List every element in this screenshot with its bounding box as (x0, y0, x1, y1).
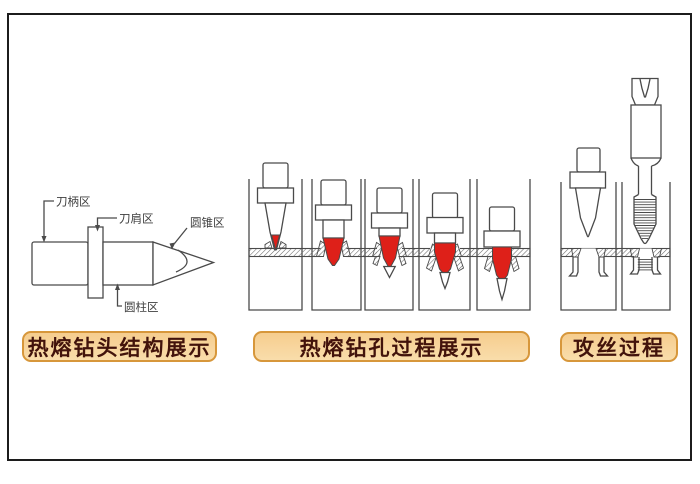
label-cylinder-zone: 圆柱区 (124, 300, 159, 314)
flow-drilling-stage-3 (372, 188, 408, 278)
tap-neck (639, 166, 652, 195)
label-shank-zone: 刀柄区 (56, 196, 91, 209)
tap-waist (631, 158, 661, 166)
drill-flange (258, 188, 294, 203)
drill-shank (263, 163, 288, 188)
drill-shank (433, 193, 458, 218)
drill-shank (321, 180, 346, 205)
drill-flange (372, 213, 408, 228)
flow-drilling-process (249, 163, 530, 310)
label-shoulder-zone: 刀肩区 (119, 212, 154, 226)
flow-drilling-stage-1 (258, 163, 294, 251)
cylinder-leader-line (118, 289, 123, 306)
shoulder-leader-line (98, 218, 118, 226)
bushing-collar-left (630, 249, 640, 258)
shank-leader-line (44, 201, 54, 237)
bulge-right (279, 242, 286, 249)
drill-body (323, 220, 344, 238)
drill-flange (484, 231, 520, 247)
drill-cylinder-zone (103, 242, 153, 285)
label-cone-zone: 圆锥区 (190, 217, 225, 230)
tapping-stage-tap (630, 79, 662, 275)
heated-zone (435, 243, 456, 273)
drill-shank (577, 148, 600, 172)
tap-drive-head (632, 79, 658, 106)
drill-body (379, 228, 400, 236)
drill-bit-structure-diagram: 刀柄区 刀肩区 圆锥区 圆柱区 (32, 196, 225, 315)
heated-zone (493, 247, 512, 280)
drill-shoulder-flange (88, 227, 103, 298)
drill-tip (440, 273, 450, 289)
bulge-left (265, 242, 272, 249)
drill-shank (490, 207, 515, 231)
drill-tip (497, 279, 507, 300)
collar-left (373, 257, 380, 266)
cone-leader-line (175, 228, 188, 244)
tap-upper-shank (631, 105, 661, 158)
drill-cone (576, 188, 601, 237)
caption-drill-structure: 热熔钻头结构展示 (22, 331, 217, 362)
heated-zone (379, 236, 400, 267)
collar-right (454, 257, 464, 272)
drill-flange (427, 218, 463, 234)
flow-drilling-stage-2 (316, 180, 352, 266)
tapping-process (561, 79, 670, 311)
drill-cone-zone (153, 242, 214, 285)
drill-flange (316, 205, 352, 220)
tapping-stage-hole (570, 148, 608, 277)
drill-shank (377, 188, 402, 213)
collar-right (399, 257, 406, 266)
heated-tip (323, 238, 344, 266)
diagram-canvas: 刀柄区 刀肩区 圆锥区 圆柱区 (0, 0, 700, 484)
caption-tapping-process: 攻丝过程 (560, 332, 678, 362)
drill-body (435, 233, 456, 243)
bushing-collar-right (652, 249, 662, 258)
collar-left (427, 257, 437, 272)
drill-tip (384, 267, 395, 278)
drill-flange (570, 172, 606, 188)
flow-drilling-figure: 刀柄区 刀肩区 圆锥区 圆柱区 (0, 0, 700, 484)
flow-drilling-stage-4 (427, 193, 464, 289)
drill-shank-zone (32, 242, 88, 285)
caption-drilling-process: 热熔钻孔过程展示 (253, 331, 530, 362)
